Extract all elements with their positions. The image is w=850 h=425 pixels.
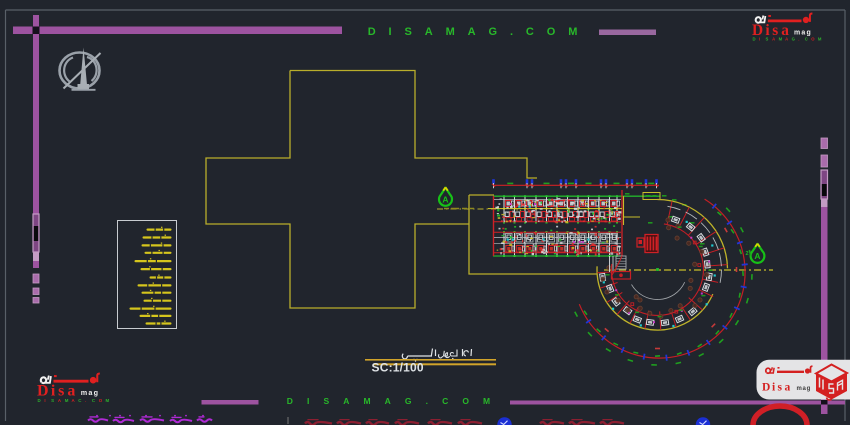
svg-text:M: M — [105, 398, 109, 403]
svg-text:DISAMAG.COM: DISAMAG.COM — [287, 396, 504, 406]
svg-text:D: D — [38, 398, 41, 403]
svg-text:S: S — [51, 398, 54, 403]
svg-text:I: I — [44, 398, 45, 403]
svg-text:DISAMAG.COM: DISAMAG.COM — [368, 26, 591, 38]
svg-text:mag: mag — [794, 29, 812, 36]
svg-text:S: S — [766, 37, 769, 42]
svg-text:.: . — [798, 37, 799, 42]
svg-text:M: M — [818, 37, 822, 42]
svg-text:O: O — [99, 398, 103, 403]
svg-text:mag: mag — [797, 386, 811, 392]
svg-text:A: A — [785, 37, 788, 42]
svg-text:A: A — [442, 195, 448, 205]
svg-text:A: A — [772, 37, 775, 42]
svg-text:D: D — [762, 382, 770, 394]
svg-text:SC:1/100: SC:1/100 — [372, 361, 424, 375]
svg-text:2: 2 — [745, 251, 748, 257]
svg-text:D: D — [752, 37, 755, 42]
svg-text:A: A — [754, 251, 760, 261]
svg-text:s: s — [778, 382, 783, 394]
svg-text:M: M — [65, 398, 69, 403]
svg-text:M: M — [779, 37, 783, 42]
svg-text:C: C — [805, 37, 808, 42]
svg-text:.: . — [85, 398, 86, 403]
svg-text:a: a — [785, 382, 791, 394]
svg-text:I: I — [759, 37, 760, 42]
svg-text:mag: mag — [81, 388, 100, 397]
